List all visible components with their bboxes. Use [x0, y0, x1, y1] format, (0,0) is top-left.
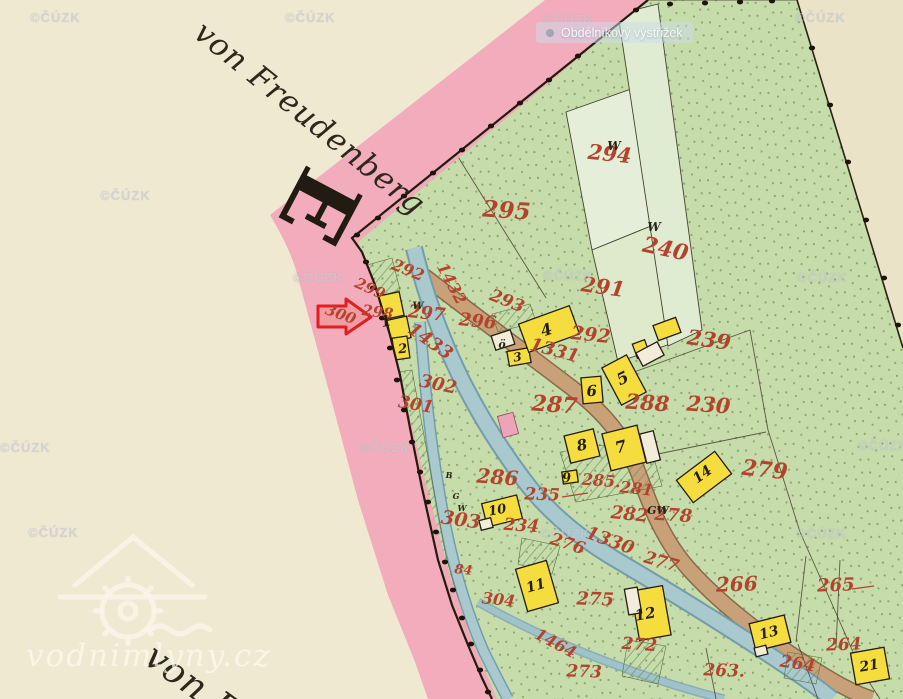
survey-stone-marker [409, 440, 415, 445]
survey-stone-marker [375, 216, 381, 221]
parcel-number: 279 [740, 455, 789, 486]
land-symbol: W [607, 139, 622, 153]
parcel-number: 272 [620, 634, 658, 657]
survey-stone-marker [881, 276, 887, 281]
building-outline [754, 645, 768, 657]
survey-stone-marker [363, 260, 369, 265]
crop-tool-label: Obdélníkový výstřižek [561, 26, 683, 40]
survey-stone-marker [450, 588, 456, 593]
survey-stone-marker [417, 470, 423, 475]
survey-stone-marker [485, 690, 491, 695]
parcel-number: 296 [457, 309, 498, 334]
parcel-number: 295 [481, 195, 532, 225]
survey-stone-marker [575, 54, 581, 59]
land-symbol: W [458, 503, 468, 513]
survey-stone-marker [863, 218, 869, 223]
survey-stone-marker [394, 378, 400, 383]
survey-stone-marker [702, 1, 708, 6]
land-symbol: B [445, 470, 453, 480]
building-number: 12 [633, 603, 657, 624]
cadastral-map: von FreudenbergEvon F 295294291240239292… [0, 0, 903, 699]
parcel-number: 288 [624, 388, 671, 416]
survey-stone-marker [433, 530, 439, 535]
parcel-number: 235 [523, 484, 560, 505]
crop-tool-icon [546, 29, 554, 37]
survey-stone-marker [517, 101, 523, 106]
parcel-number: 264 [825, 634, 862, 655]
survey-stone-marker [477, 668, 483, 673]
parcel-number: 266 [714, 571, 758, 596]
survey-stone-marker [425, 500, 431, 505]
survey-stone-marker [895, 323, 901, 328]
parcel-number: 304 [481, 588, 516, 610]
survey-stone-marker [430, 171, 436, 176]
parcel-number: 286 [475, 464, 519, 491]
parcel-number: 282 [609, 502, 650, 527]
survey-stone-marker [809, 46, 815, 51]
map-viewport: von FreudenbergEvon F 295294291240239292… [0, 0, 903, 699]
building-outline [479, 518, 493, 531]
survey-stone-marker [468, 642, 474, 647]
survey-stone-marker [387, 346, 393, 351]
survey-stone-marker [845, 160, 851, 165]
land-symbol: GW [647, 504, 670, 517]
survey-stone-marker [667, 2, 673, 7]
parcel-number: 285. [580, 470, 621, 492]
survey-stone-marker [442, 560, 448, 565]
parcel-number: 275 [575, 588, 614, 610]
land-symbol: W [647, 220, 662, 234]
crop-tool-chip[interactable]: Obdélníkový výstřižek [536, 22, 693, 43]
building-number: 9 [562, 471, 572, 487]
survey-stone-marker [459, 148, 465, 153]
land-symbol: ö [498, 338, 505, 351]
parcel-number: 287 [530, 390, 579, 419]
building-number: 6 [586, 382, 598, 401]
survey-stone-marker [459, 616, 465, 621]
parcel-number: 292 [569, 322, 612, 348]
parcel-number: 265 [816, 574, 855, 596]
land-symbol: W [412, 301, 425, 312]
land-symbol: G [453, 491, 460, 501]
parcel-number: 230 [685, 390, 732, 418]
parcel-number: 234 [502, 515, 540, 537]
survey-stone-marker [827, 103, 833, 108]
building-number: 2 [397, 342, 408, 358]
parcel-number: 281 [618, 477, 654, 499]
parcel-number: 273 [565, 661, 602, 682]
survey-stone-marker [633, 8, 639, 13]
parcel-number: 263. [702, 660, 745, 681]
survey-stone-marker [488, 124, 494, 129]
building-number: 10 [487, 502, 507, 520]
survey-stone-marker [546, 78, 552, 83]
parcel-number: 84 [454, 562, 474, 579]
